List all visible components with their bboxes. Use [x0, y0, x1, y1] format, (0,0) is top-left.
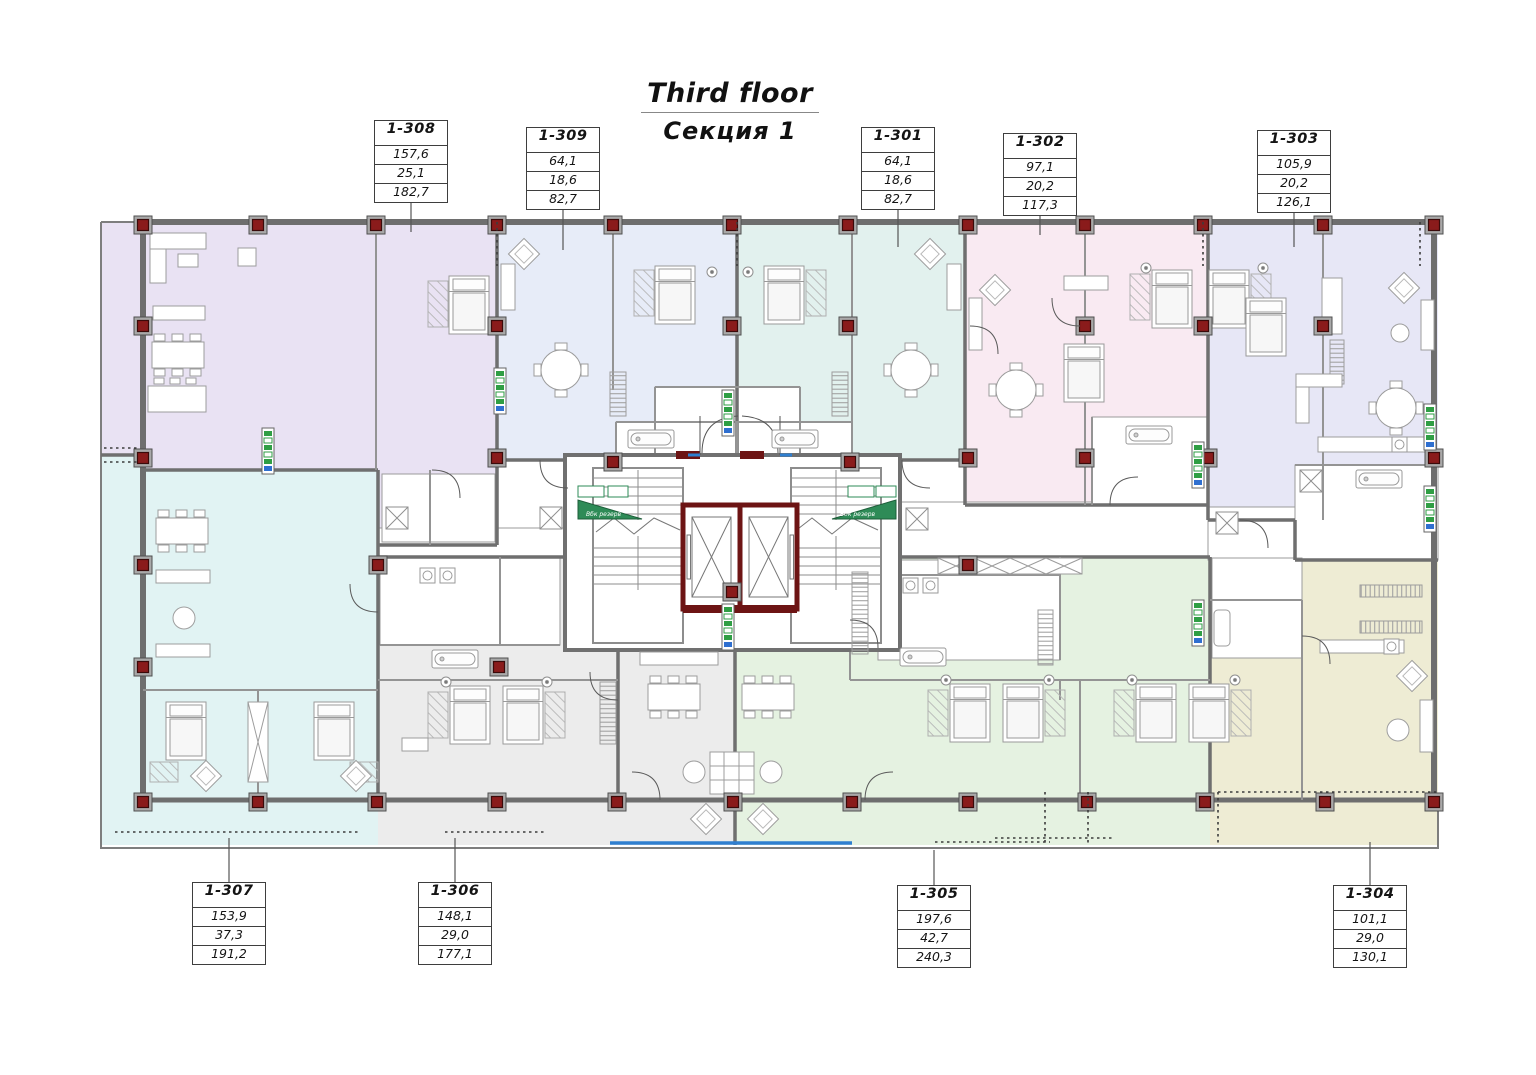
pouf-icon: [760, 761, 782, 783]
apartment-id: 1-303: [1258, 131, 1330, 156]
bed-icon: [1152, 270, 1192, 328]
area-total: 240,3: [898, 949, 970, 967]
rug-icon: [806, 270, 826, 316]
rug-icon: [1045, 690, 1065, 736]
shaft-closet-icon: [248, 702, 268, 782]
bed-icon: [1246, 298, 1286, 356]
title-section: Секция 1: [630, 117, 830, 145]
apartment-label-1-305: 1-305 197,6 42,7 240,3: [897, 885, 971, 968]
bed-icon: [1003, 684, 1043, 742]
reserve-label: Вбк резерв: [840, 511, 876, 518]
wardrobe-icon: [832, 372, 848, 416]
bed-icon: [166, 702, 206, 760]
desk-icon: [402, 738, 428, 751]
area-total: 177,1: [419, 946, 491, 964]
bed-icon: [450, 686, 490, 744]
area-total: 82,7: [862, 191, 934, 209]
area-other: 18,6: [862, 172, 934, 191]
apartment-id: 1-305: [898, 886, 970, 911]
area-total: 130,1: [1334, 949, 1406, 967]
area-other: 20,2: [1004, 178, 1076, 197]
title-floor: Third floor: [641, 78, 819, 113]
bed-icon: [655, 266, 695, 324]
apartment-id: 1-308: [375, 121, 447, 146]
rug-icon: [428, 281, 448, 327]
apartment-label-1-301: 1-301 64,1 18,6 82,7: [861, 127, 935, 210]
apartment-label-1-307: 1-307 153,9 37,3 191,2: [192, 882, 266, 965]
apartment-id: 1-302: [1004, 134, 1076, 159]
sink-icon: [903, 578, 918, 593]
area-living: 157,6: [375, 146, 447, 165]
apartment-label-1-308: 1-308 157,6 25,1 182,7: [374, 120, 448, 203]
bathtub-icon: [1214, 610, 1230, 646]
bathtub-icon: [628, 430, 674, 448]
reserve-label: Вбк резерв: [586, 511, 622, 518]
bed-icon: [1189, 684, 1229, 742]
sofa-icon: [156, 644, 210, 657]
pouf-icon: [1391, 324, 1409, 342]
shelf-unit-icon: [710, 752, 754, 794]
bed-icon: [449, 276, 489, 334]
area-living: 153,9: [193, 908, 265, 927]
sofa-icon: [501, 264, 515, 310]
bed-icon: [1064, 344, 1104, 402]
pouf-icon: [1387, 719, 1409, 741]
rug-icon: [634, 270, 654, 316]
apartment-id: 1-304: [1334, 886, 1406, 911]
area-other: 37,3: [193, 927, 265, 946]
bathtub-icon: [1126, 426, 1172, 444]
area-total: 82,7: [527, 191, 599, 209]
bed-icon: [314, 702, 354, 760]
dining-table-icon: [152, 334, 204, 376]
sink-icon: [1392, 437, 1407, 452]
wardrobe-icon: [600, 682, 616, 744]
area-living: 197,6: [898, 911, 970, 930]
bathtub-icon: [432, 650, 478, 668]
desk-icon: [1064, 276, 1108, 290]
pouf-icon: [683, 761, 705, 783]
apartment-label-1-309: 1-309 64,1 18,6 82,7: [526, 127, 600, 210]
area-living: 97,1: [1004, 159, 1076, 178]
area-other: 20,2: [1258, 175, 1330, 194]
area-other: 29,0: [1334, 930, 1406, 949]
bed-icon: [503, 686, 543, 744]
apartment-id: 1-309: [527, 128, 599, 153]
area-living: 148,1: [419, 908, 491, 927]
sofa-icon: [1296, 374, 1342, 387]
rug-icon: [428, 692, 448, 738]
sink-icon: [1384, 639, 1399, 654]
rug-icon: [545, 692, 565, 738]
floor-plan-sheet: Вбк резерв Вбк резерв: [0, 0, 1536, 1075]
wardrobe-icon: [1360, 621, 1422, 633]
area-other: 18,6: [527, 172, 599, 191]
rug-icon: [150, 762, 178, 782]
rug-icon: [1130, 274, 1150, 320]
dining-table-icon: [742, 676, 794, 718]
sofa-icon: [969, 298, 982, 350]
area-other: 42,7: [898, 930, 970, 949]
area-total: 182,7: [375, 184, 447, 202]
sofa-icon: [156, 570, 210, 583]
rug-icon: [928, 690, 948, 736]
area-living: 105,9: [1258, 156, 1330, 175]
zone-balcony-1-308: [101, 222, 143, 455]
kitchen-counter-icon: [640, 652, 718, 665]
kitchen-counter-icon: [1318, 437, 1426, 452]
area-living: 101,1: [1334, 911, 1406, 930]
closet-icon: [540, 507, 562, 529]
apartment-label-1-306: 1-306 148,1 29,0 177,1: [418, 882, 492, 965]
wardrobe-icon: [1038, 610, 1053, 665]
sink-icon: [440, 568, 455, 583]
area-total: 126,1: [1258, 194, 1330, 212]
bathtub-icon: [900, 648, 946, 666]
bed-icon: [764, 266, 804, 324]
bathtub-icon: [772, 430, 818, 448]
sofa-icon: [1421, 300, 1434, 350]
closet-icon: [1300, 470, 1322, 492]
pouf-icon: [173, 607, 195, 629]
sofa-icon: [1296, 387, 1309, 423]
rug-icon: [1114, 690, 1134, 736]
closet-icon: [906, 508, 928, 530]
dining-table-icon: [648, 676, 700, 718]
area-living: 64,1: [862, 153, 934, 172]
area-total: 117,3: [1004, 197, 1076, 215]
wardrobe-icon: [1360, 585, 1422, 597]
wardrobe-icon: [610, 372, 626, 416]
apartment-id: 1-301: [862, 128, 934, 153]
bed-icon: [1209, 270, 1249, 328]
wardrobe-icon: [852, 572, 868, 654]
sink-icon: [420, 568, 435, 583]
area-total: 191,2: [193, 946, 265, 964]
rug-icon: [1231, 690, 1251, 736]
bathtub-icon: [1356, 470, 1402, 488]
apartment-label-1-302: 1-302 97,1 20,2 117,3: [1003, 133, 1077, 216]
apartment-label-1-303: 1-303 105,9 20,2 126,1: [1257, 130, 1331, 213]
closet-icon: [1216, 512, 1238, 534]
bed-icon: [950, 684, 990, 742]
sofa-icon: [947, 264, 961, 310]
dining-table-icon: [156, 510, 208, 552]
apartment-id: 1-307: [193, 883, 265, 908]
sheet-title: Third floor Секция 1: [630, 78, 830, 145]
apartment-id: 1-306: [419, 883, 491, 908]
area-other: 29,0: [419, 927, 491, 946]
closet-icon: [386, 507, 408, 529]
area-living: 64,1: [527, 153, 599, 172]
bed-icon: [1136, 684, 1176, 742]
sofa-icon: [1420, 700, 1433, 752]
area-other: 25,1: [375, 165, 447, 184]
sink-icon: [923, 578, 938, 593]
apartment-label-1-304: 1-304 101,1 29,0 130,1: [1333, 885, 1407, 968]
